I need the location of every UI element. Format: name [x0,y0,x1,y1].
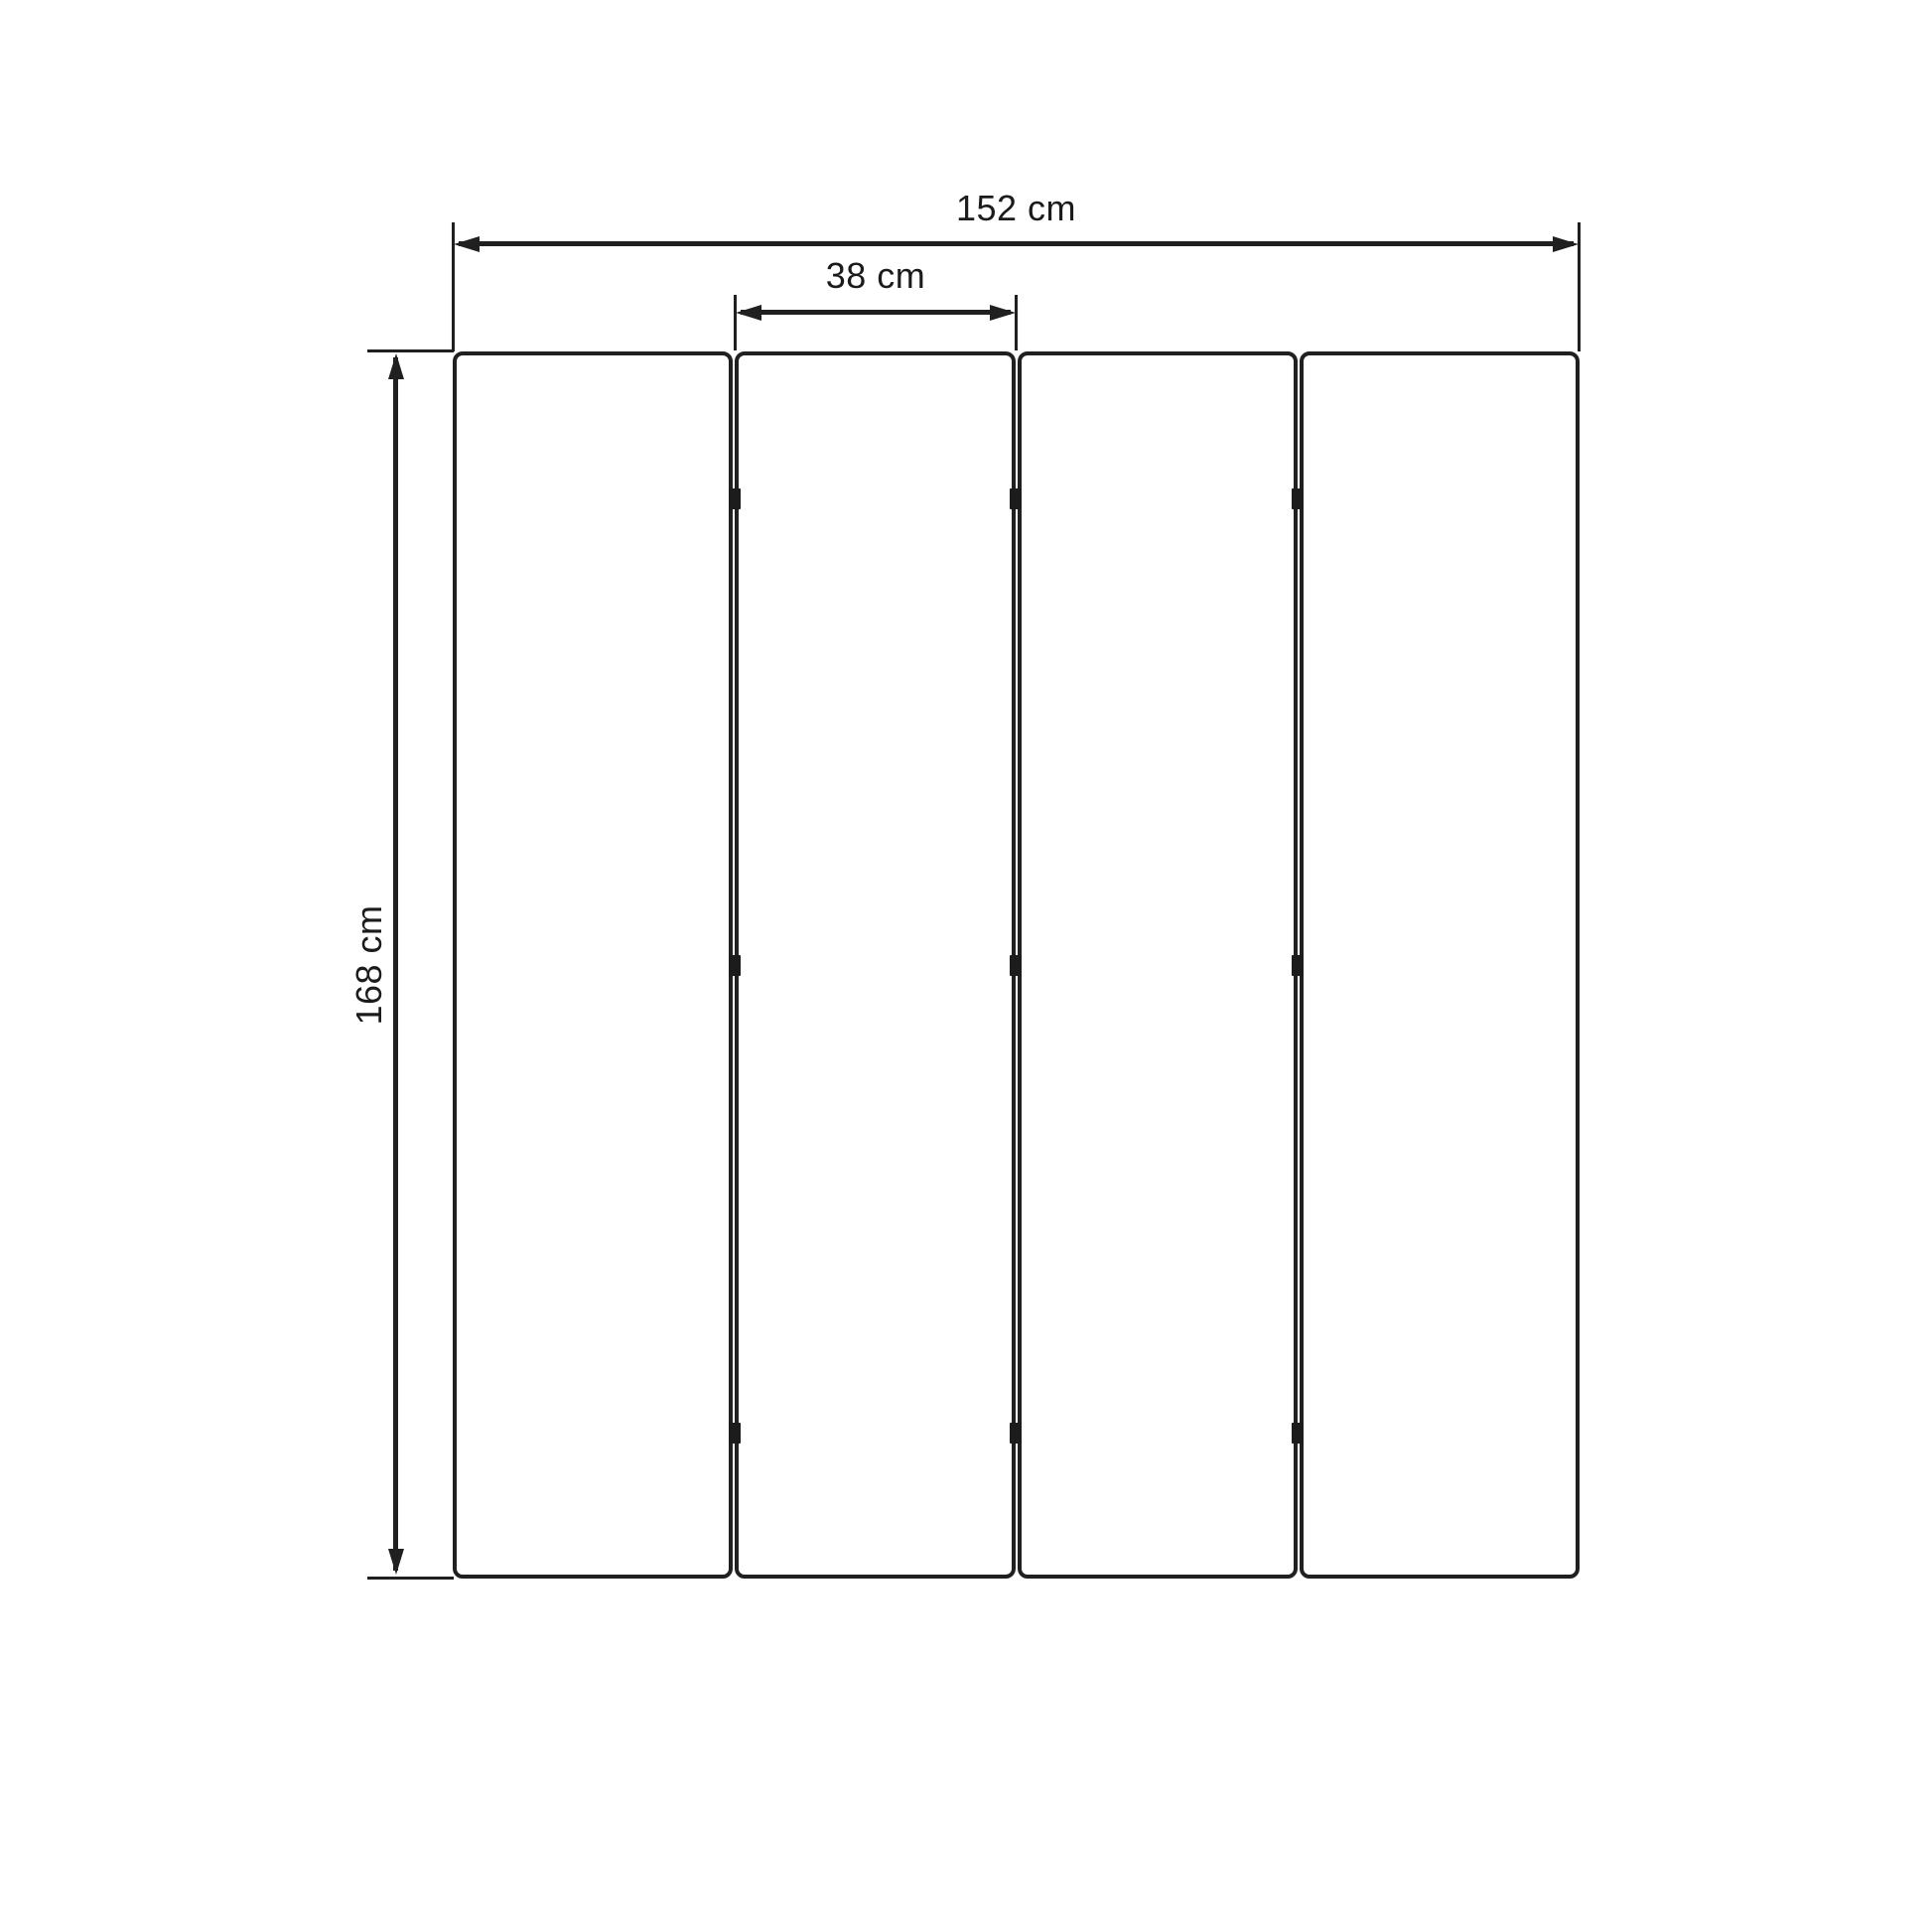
panel-4 [1300,351,1580,1579]
extension-line [1015,295,1018,350]
extension-line [367,349,454,352]
panel-3 [1018,351,1298,1579]
height-label: 168 cm [349,866,389,1064]
dimension-diagram: 152 cm 38 cm 168 cm [0,0,1932,1932]
arrow-right-icon [1553,236,1579,252]
total-width-label: 152 cm [453,189,1580,228]
extension-line [367,1577,454,1580]
arrow-left-icon [454,236,480,252]
hinge-mark [1010,488,1022,509]
panel-2 [735,351,1015,1579]
panel-width-label: 38 cm [735,256,1017,296]
hinge-mark [729,955,741,976]
panel-width-dimension-line [741,310,1011,315]
arrow-down-icon [388,1549,404,1575]
hinge-mark [1010,955,1022,976]
hinge-mark [729,488,741,509]
panel-1 [453,351,733,1579]
arrow-up-icon [388,353,404,379]
total-width-dimension-line [459,241,1574,246]
hinge-mark [1292,1423,1304,1444]
hinge-mark [1292,955,1304,976]
hinge-mark [1010,1423,1022,1444]
hinge-mark [729,1423,741,1444]
extension-line [734,295,737,350]
arrow-right-icon [990,305,1016,321]
arrow-left-icon [736,305,761,321]
height-dimension-line [393,357,398,1571]
hinge-mark [1292,488,1304,509]
